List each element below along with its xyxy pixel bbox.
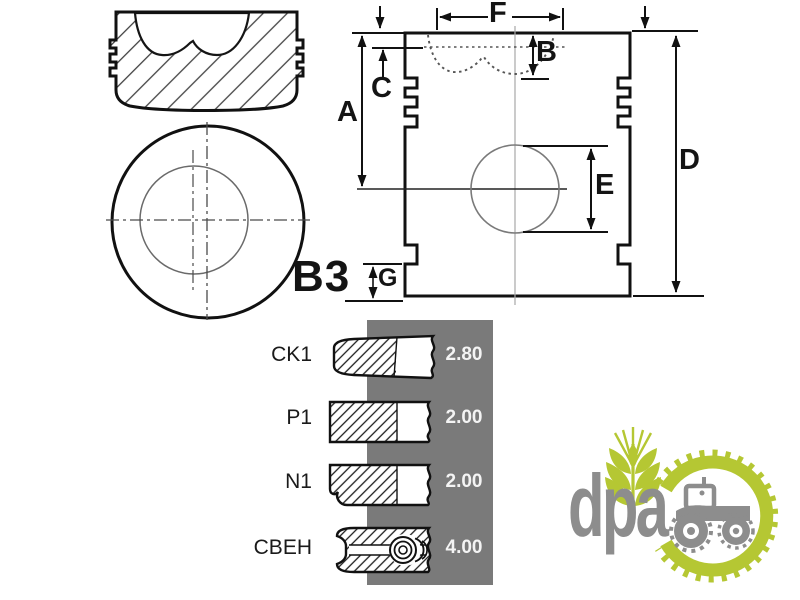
- dim-label-d: D: [679, 146, 700, 175]
- ring-value-p1: 2.00: [440, 408, 488, 427]
- dim-label-f: F: [489, 0, 507, 28]
- ring-value-cbeh: 4.00: [440, 538, 488, 557]
- piston-crown-section: [100, 5, 315, 120]
- tractor-icon: [671, 477, 753, 551]
- piston-side-view: [345, 6, 704, 305]
- piston-outer-circle: [112, 126, 304, 318]
- side-outline: [405, 33, 630, 296]
- ring-profile-n1: [326, 463, 430, 507]
- ring-label-cbeh: CBEH: [240, 537, 312, 558]
- ring-profile-p1: [326, 400, 430, 444]
- technical-drawing-canvas: [0, 0, 800, 600]
- ring-label-ck1: CK1: [240, 344, 312, 365]
- catalog-image: B3 A B C D E F G CK1 2.80 P1 2.00 N1 2.0…: [0, 0, 800, 600]
- ring-value-n1: 2.00: [440, 472, 488, 491]
- dim-label-g: G: [378, 266, 397, 291]
- dim-label-a: A: [337, 98, 358, 127]
- dim-label-b: B: [536, 38, 557, 67]
- dim-label-e: E: [595, 171, 614, 200]
- ring-value-ck1: 2.80: [440, 345, 488, 364]
- part-label: B3: [292, 255, 350, 299]
- piston-top-view: [106, 122, 310, 320]
- ring-label-n1: N1: [240, 471, 312, 492]
- dim-label-c: C: [371, 74, 392, 103]
- ring-label-p1: P1: [240, 407, 312, 428]
- ring-profile-cbeh: [332, 524, 436, 576]
- ring-profile-ck1: [330, 332, 434, 382]
- logo-text: dpa: [568, 462, 666, 550]
